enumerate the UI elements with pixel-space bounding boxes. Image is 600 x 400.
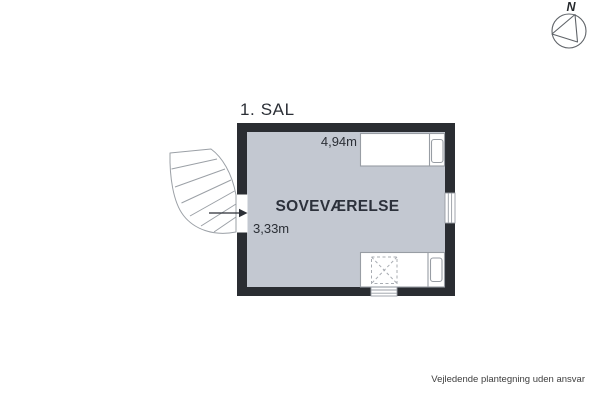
compass-icon	[552, 14, 586, 48]
disclaimer-text: Vejledende plantegning uden ansvar	[431, 374, 585, 385]
floor-title: 1. SAL	[240, 100, 295, 120]
window-right-wall	[445, 193, 455, 223]
pillow	[431, 258, 443, 282]
pillow	[432, 140, 444, 163]
window-bottom-wall	[371, 287, 397, 296]
floorplan-canvas: N 1. SAL 4,94m SOVEVÆRELSE 3,33m Vejlede…	[0, 0, 600, 400]
room-depth-dimension: 3,33m	[253, 221, 289, 236]
staircase	[170, 149, 236, 233]
compass-north-label: N	[564, 0, 578, 14]
room-name: SOVEVÆRELSE	[245, 198, 430, 216]
room-width-dimension: 4,94m	[312, 134, 357, 149]
single-bed-top	[361, 134, 445, 167]
